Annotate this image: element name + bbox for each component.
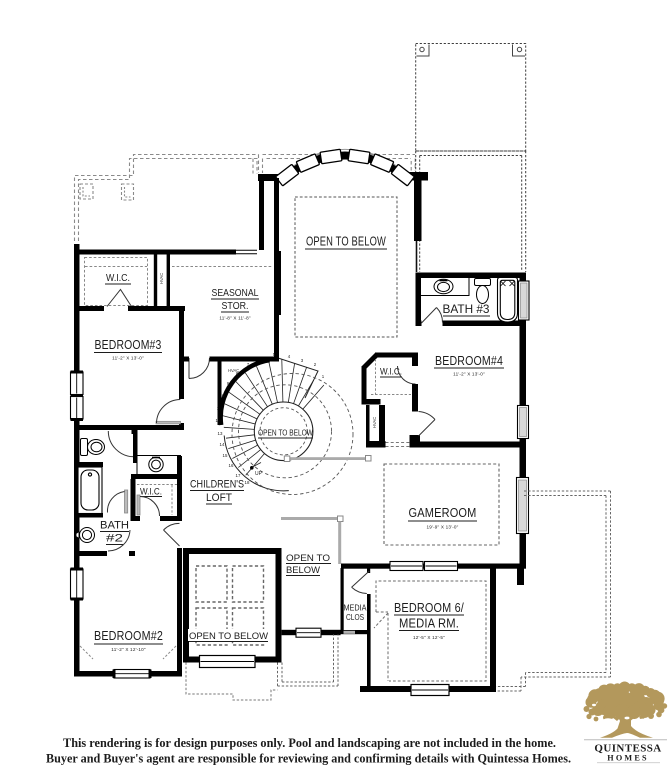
svg-text:HVAC: HVAC: [228, 368, 239, 373]
svg-text:HVAC: HVAC: [159, 273, 164, 284]
svg-text:HVAC: HVAC: [372, 417, 377, 428]
svg-text:OPEN TO BELOW: OPEN TO BELOW: [306, 234, 386, 249]
svg-text:This rendering is for design p: This rendering is for design purposes on…: [63, 736, 556, 750]
svg-text:16: 16: [229, 463, 234, 468]
svg-text:MEDIA RM.: MEDIA RM.: [399, 616, 459, 631]
svg-text:GAMEROOM: GAMEROOM: [409, 505, 477, 520]
svg-text:BELOW: BELOW: [286, 565, 320, 576]
svg-text:19'-9" X 13'-0": 19'-9" X 13'-0": [426, 525, 458, 530]
svg-text:STOR.: STOR.: [222, 301, 249, 312]
svg-text:17: 17: [236, 473, 241, 478]
svg-text:OPEN TO BELOW: OPEN TO BELOW: [258, 429, 313, 438]
svg-text:11'-2" X 13'-0": 11'-2" X 13'-0": [112, 356, 144, 361]
svg-text:BEDROOM 6/: BEDROOM 6/: [394, 600, 464, 615]
svg-text:LOFT: LOFT: [206, 492, 232, 504]
svg-text:18: 18: [245, 480, 250, 485]
svg-text:11'-8" X 11'-8": 11'-8" X 11'-8": [219, 316, 251, 321]
svg-text:BATH: BATH: [100, 520, 129, 532]
svg-text:BEDROOM#3: BEDROOM#3: [95, 337, 162, 352]
svg-text:MEDIA: MEDIA: [344, 603, 367, 613]
svg-text:OPEN TO: OPEN TO: [286, 553, 330, 564]
svg-text:12'-5" X 12'-5": 12'-5" X 12'-5": [413, 635, 445, 640]
svg-text:CHILDREN'S: CHILDREN'S: [190, 479, 244, 491]
svg-text:BATH #3: BATH #3: [443, 302, 490, 316]
svg-text:CLOS: CLOS: [346, 612, 364, 622]
svg-text:OPEN TO BELOW: OPEN TO BELOW: [189, 631, 268, 642]
svg-text:15: 15: [223, 453, 228, 458]
svg-text:11'-2" X 12'-10": 11'-2" X 12'-10": [111, 647, 146, 652]
svg-text:UP: UP: [255, 471, 263, 477]
svg-text:14: 14: [220, 442, 225, 447]
svg-text:BEDROOM#2: BEDROOM#2: [94, 628, 163, 643]
svg-text:#2: #2: [106, 533, 123, 545]
svg-text:13: 13: [218, 431, 223, 436]
svg-text:SEASONAL: SEASONAL: [212, 288, 259, 299]
svg-text:W.I.C.: W.I.C.: [140, 487, 162, 497]
svg-text:HOMES: HOMES: [607, 754, 648, 763]
svg-text:BEDROOM#4: BEDROOM#4: [435, 353, 503, 368]
svg-text:W.I.C.: W.I.C.: [106, 273, 130, 284]
svg-text:Buyer and Buyer's agent are re: Buyer and Buyer's agent are responsible …: [46, 752, 571, 766]
svg-text:11'-2" X 13'-0": 11'-2" X 13'-0": [453, 372, 485, 377]
